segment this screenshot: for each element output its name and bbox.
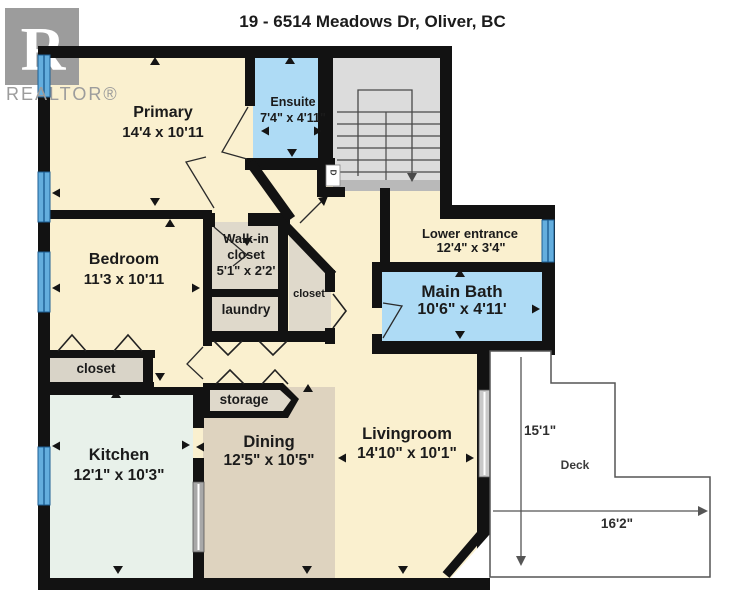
kitchen-floor bbox=[50, 394, 193, 578]
room-dims-primary: 14'4 x 10'11 bbox=[122, 125, 203, 141]
room-dims-walkin: 5'1" x 2'2' bbox=[217, 264, 276, 278]
room-dims-dining: 12'5" x 10'5" bbox=[223, 453, 314, 469]
deck-width-dim: 16'2" bbox=[601, 516, 633, 531]
deck-depth-dim: 15'1" bbox=[524, 423, 556, 438]
room-label-storage: storage bbox=[220, 393, 269, 407]
room-dims-livingroom: 14'10" x 10'1" bbox=[357, 446, 457, 462]
room-label-bedroom: Bedroom bbox=[89, 252, 159, 269]
room-label-livingroom: Livingroom bbox=[362, 426, 452, 443]
door-marker-label: D bbox=[329, 166, 338, 180]
room-label-main-bath: Main Bath bbox=[421, 283, 502, 301]
floor-plan-page: R bbox=[0, 0, 745, 606]
room-dims-main-bath: 10'6" x 4'11' bbox=[417, 302, 506, 319]
room-label-primary: Primary bbox=[133, 105, 193, 122]
room-dims-bedroom: 11'3 x 10'11 bbox=[84, 272, 165, 288]
room-label-walkin-1: Walk-in bbox=[223, 232, 269, 246]
room-dims-kitchen: 12'1" x 10'3" bbox=[73, 468, 164, 484]
realtor-wordmark: REALTOR® bbox=[6, 84, 119, 105]
deck-outline bbox=[490, 351, 710, 577]
room-label-lower-entrance: Lower entrance bbox=[422, 227, 518, 241]
floor-fills bbox=[44, 54, 544, 584]
ensuite-floor bbox=[253, 56, 318, 163]
room-dims-lower-entrance: 12'4" x 3'4" bbox=[436, 241, 505, 255]
room-label-ensuite: Ensuite bbox=[270, 96, 315, 109]
page-title: 19 - 6514 Meadows Dr, Oliver, BC bbox=[0, 12, 745, 32]
room-label-laundry: laundry bbox=[222, 303, 271, 317]
deck-label: Deck bbox=[561, 459, 590, 472]
room-label-walkin-2: closet bbox=[227, 248, 265, 262]
room-dims-ensuite: 7'4" x 4'11" bbox=[260, 112, 326, 125]
room-label-dining: Dining bbox=[243, 434, 294, 451]
room-label-bedroom-closet: closet bbox=[76, 362, 115, 376]
room-label-hall-closet: closet bbox=[293, 289, 325, 301]
room-label-kitchen: Kitchen bbox=[89, 447, 150, 464]
